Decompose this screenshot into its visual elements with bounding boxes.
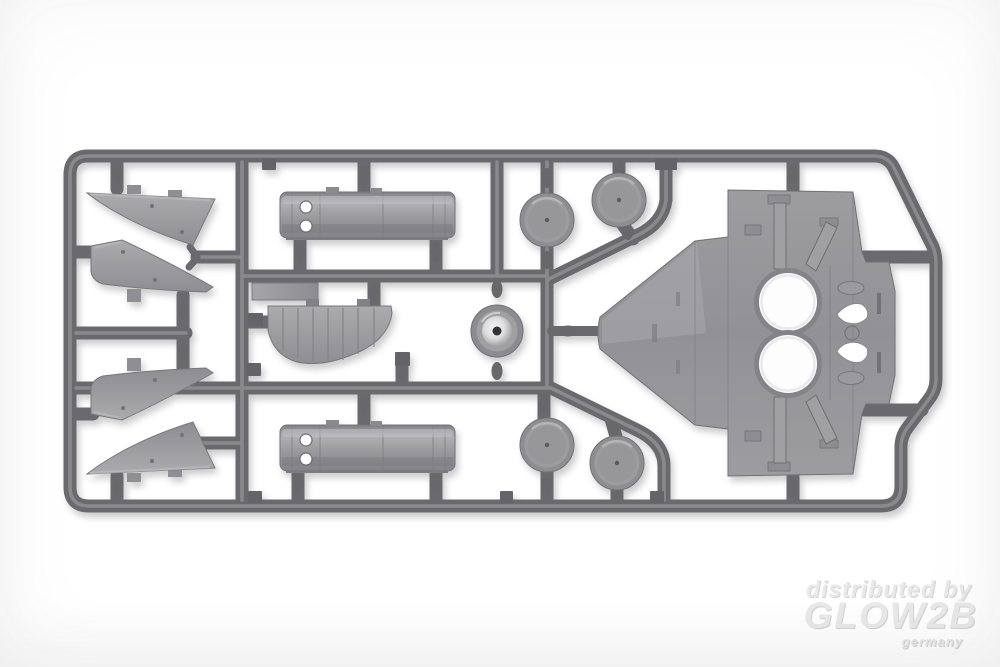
- part-tail-fin-panel-1: [87, 185, 215, 245]
- sprue: [70, 156, 936, 506]
- sprue-illustration: [0, 0, 1000, 667]
- part-wheel-2: [592, 173, 646, 227]
- product-photo: distributed by GLOW2B germany: [0, 0, 1000, 667]
- part-engine-cowling: [471, 305, 523, 357]
- part-fuselage-half-lower: [280, 420, 455, 473]
- part-wheel-4: [590, 436, 644, 490]
- part-wing-center-section: [268, 299, 392, 364]
- part-tail-fin-panel-4: [87, 422, 215, 482]
- part-fuselage-half-upper: [280, 187, 455, 240]
- part-wheel-1: [520, 193, 574, 247]
- part-flat-panel: [252, 283, 318, 300]
- part-wheel-3: [520, 418, 574, 472]
